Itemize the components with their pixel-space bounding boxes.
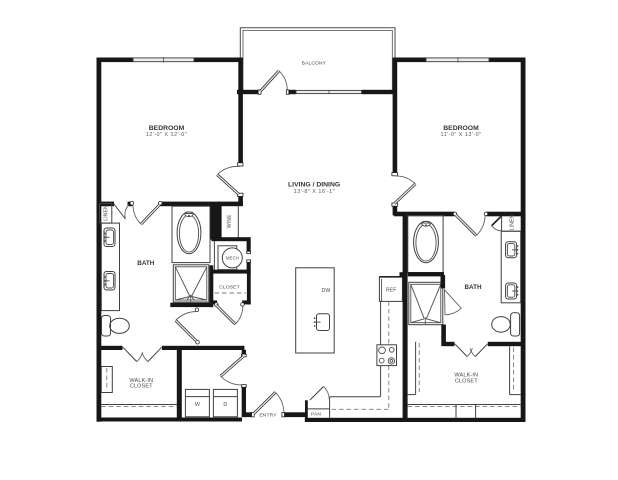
svg-text:BATH: BATH — [464, 284, 481, 291]
svg-text:MECH: MECH — [226, 256, 239, 261]
svg-text:13′-8″ X 16′-1″: 13′-8″ X 16′-1″ — [294, 189, 335, 195]
svg-text:ENTRY: ENTRY — [259, 413, 277, 419]
svg-text:D: D — [223, 402, 227, 408]
svg-text:LINEN: LINEN — [510, 215, 516, 231]
svg-text:BALCONY: BALCONY — [302, 61, 327, 67]
svg-text:LINEN: LINEN — [103, 205, 109, 221]
svg-text:LIVING / DINING: LIVING / DINING — [288, 182, 340, 189]
svg-text:11′-0″ X 13′-0″: 11′-0″ X 13′-0″ — [440, 132, 481, 138]
svg-text:CLOSET: CLOSET — [130, 384, 153, 390]
svg-text:WINE: WINE — [227, 214, 233, 228]
svg-text:W: W — [195, 402, 200, 408]
svg-text:12′-0″ X 12′-0″: 12′-0″ X 12′-0″ — [146, 132, 187, 138]
svg-text:BEDROOM: BEDROOM — [443, 125, 479, 132]
svg-text:REF: REF — [386, 288, 396, 294]
svg-text:BATH: BATH — [137, 260, 154, 267]
svg-text:PAN: PAN — [311, 411, 321, 417]
svg-text:CLOSET: CLOSET — [455, 378, 478, 384]
svg-text:CLOSET: CLOSET — [219, 285, 239, 291]
svg-text:DW: DW — [322, 288, 331, 294]
svg-text:BEDROOM: BEDROOM — [149, 125, 185, 132]
